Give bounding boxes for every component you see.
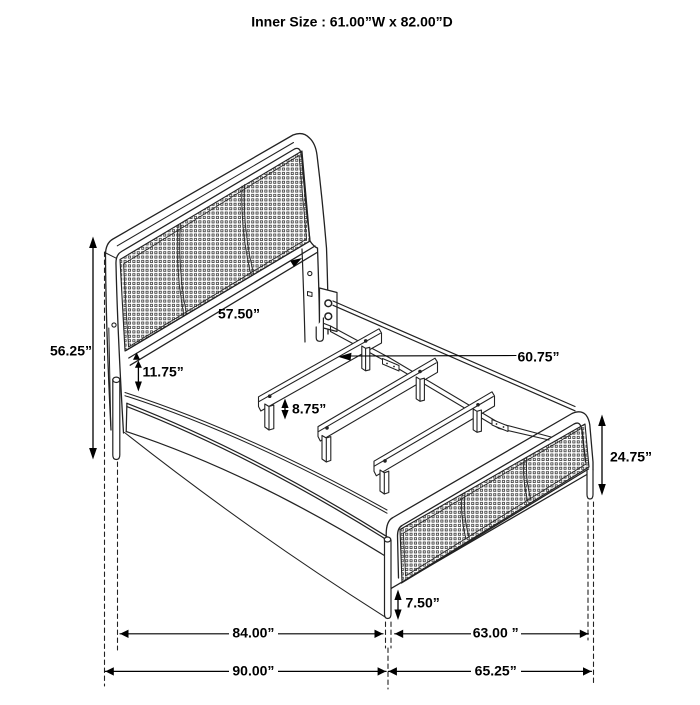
svg-text:Inner Size : 61.00”W x 82.00”D: Inner Size : 61.00”W x 82.00”D bbox=[251, 14, 453, 30]
svg-text:60.75”: 60.75” bbox=[518, 348, 560, 364]
svg-text:56.25”: 56.25” bbox=[50, 343, 92, 359]
svg-text:57.50”: 57.50” bbox=[218, 306, 260, 322]
svg-text:24.75”: 24.75” bbox=[610, 449, 652, 465]
svg-text:84.00”: 84.00” bbox=[232, 625, 274, 641]
svg-text:7.50”: 7.50” bbox=[406, 595, 440, 611]
svg-text:8.75”: 8.75” bbox=[292, 401, 326, 417]
svg-text:63.00 ”: 63.00 ” bbox=[473, 625, 519, 641]
svg-text:90.00”: 90.00” bbox=[232, 662, 274, 678]
svg-text:11.75”: 11.75” bbox=[143, 364, 184, 380]
svg-text:65.25”: 65.25” bbox=[475, 662, 517, 678]
